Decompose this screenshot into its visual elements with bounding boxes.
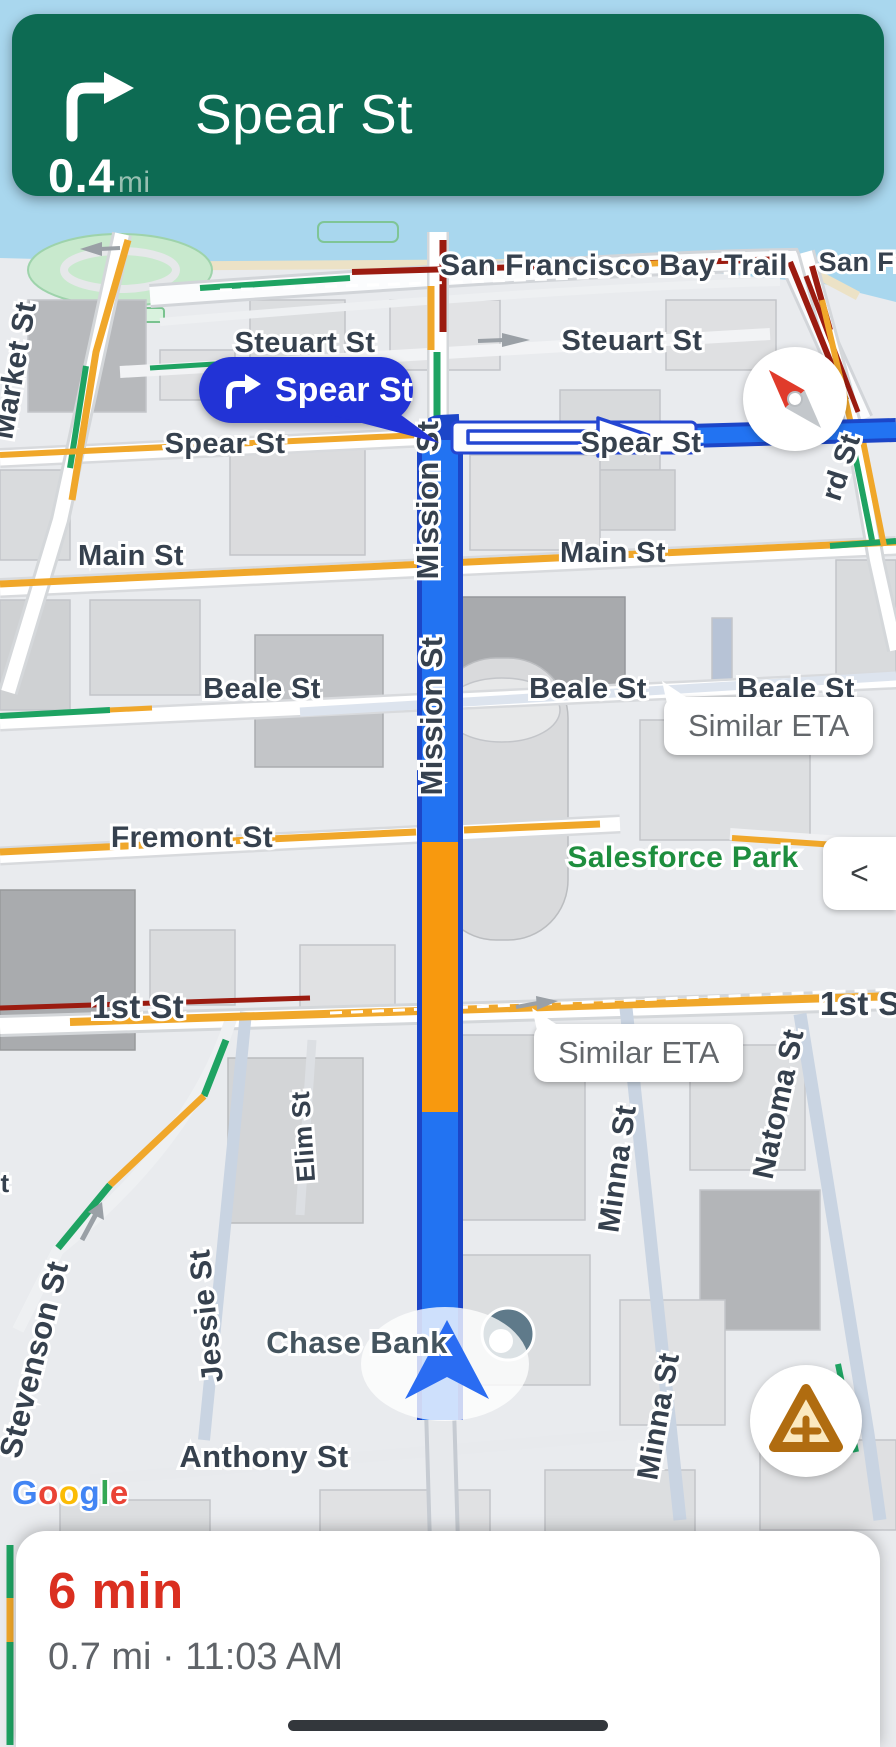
street-label-anthony: Anthony St xyxy=(179,1439,348,1474)
trip-summary-sheet[interactable]: 6 min 0.7 mi · 11:03 AM xyxy=(16,1531,880,1747)
collapse-panel-button[interactable]: < xyxy=(823,837,896,910)
turn-right-icon xyxy=(221,370,263,410)
google-logo-letter: G xyxy=(12,1474,38,1511)
street-label-1st-right: 1st St xyxy=(820,985,896,1022)
google-logo-letter: o xyxy=(59,1474,80,1511)
report-incident-icon xyxy=(750,1365,862,1477)
maneuver-callout[interactable]: Spear St xyxy=(199,357,413,423)
callout-tail xyxy=(319,415,449,445)
google-logo-letter: l xyxy=(100,1474,110,1511)
trip-details: 0.7 mi · 11:03 AM xyxy=(48,1636,880,1679)
compass-icon xyxy=(743,347,847,451)
street-label-steuart-left: Steuart St xyxy=(235,327,376,359)
street-label-san-fran: San Fran xyxy=(819,247,896,277)
chevron-left-icon: < xyxy=(850,855,869,892)
distance-to-maneuver: 0.4mi xyxy=(48,148,151,203)
google-logo-letter: g xyxy=(80,1474,101,1511)
street-label-elim: Elim St xyxy=(285,1090,321,1183)
eta-bubble[interactable]: Similar ETA xyxy=(534,1024,743,1082)
street-label-main-right: Main St xyxy=(560,537,666,569)
poi-label-salesforce-park: Salesforce Park xyxy=(567,841,798,874)
trip-eta: 6 min xyxy=(48,1561,880,1620)
eta-bubble-tail xyxy=(530,1008,570,1046)
turn-right-icon xyxy=(58,62,140,144)
google-logo-letter: o xyxy=(38,1474,59,1511)
map-canvas[interactable]: San Francisco Bay Trail San Fran Steuart… xyxy=(0,0,896,1747)
street-label-steuart-right: Steuart St xyxy=(562,325,703,357)
street-label-t-partial: t xyxy=(0,1168,9,1198)
eta-bubble[interactable]: Similar ETA xyxy=(664,697,873,755)
street-label-spear-right: Spear St xyxy=(581,427,702,459)
distance-unit: mi xyxy=(118,166,151,199)
home-indicator[interactable] xyxy=(288,1720,608,1731)
street-label-beale-mid: Beale St xyxy=(529,673,647,705)
report-incident-button[interactable] xyxy=(750,1365,862,1477)
maneuver-street-name: Spear St xyxy=(195,82,413,146)
street-label-spear-left: Spear St xyxy=(165,428,286,460)
callout-street-name: Spear St xyxy=(275,371,413,410)
street-label-bay-trail: San Francisco Bay Trail xyxy=(440,249,788,282)
street-label-fremont: Fremont St xyxy=(111,821,273,854)
street-label-main-left: Main St xyxy=(78,540,184,572)
compass-button[interactable] xyxy=(743,347,847,451)
street-label-stevenson: Stevenson St xyxy=(0,1258,75,1462)
street-label-mission-2: Mission St xyxy=(414,636,449,795)
eta-bubble-tail xyxy=(660,681,700,719)
street-label-1st-left: 1st St xyxy=(92,988,184,1025)
navigation-banner[interactable]: 0.4mi Spear St xyxy=(12,14,884,196)
google-logo-letter: e xyxy=(110,1474,129,1511)
distance-value: 0.4 xyxy=(48,149,115,202)
poi-label-chase-bank: Chase Bank xyxy=(266,1325,448,1360)
street-label-minna-1: Minna St xyxy=(592,1103,643,1235)
google-logo: Google xyxy=(12,1474,129,1512)
street-label-beale-left: Beale St xyxy=(203,673,321,705)
